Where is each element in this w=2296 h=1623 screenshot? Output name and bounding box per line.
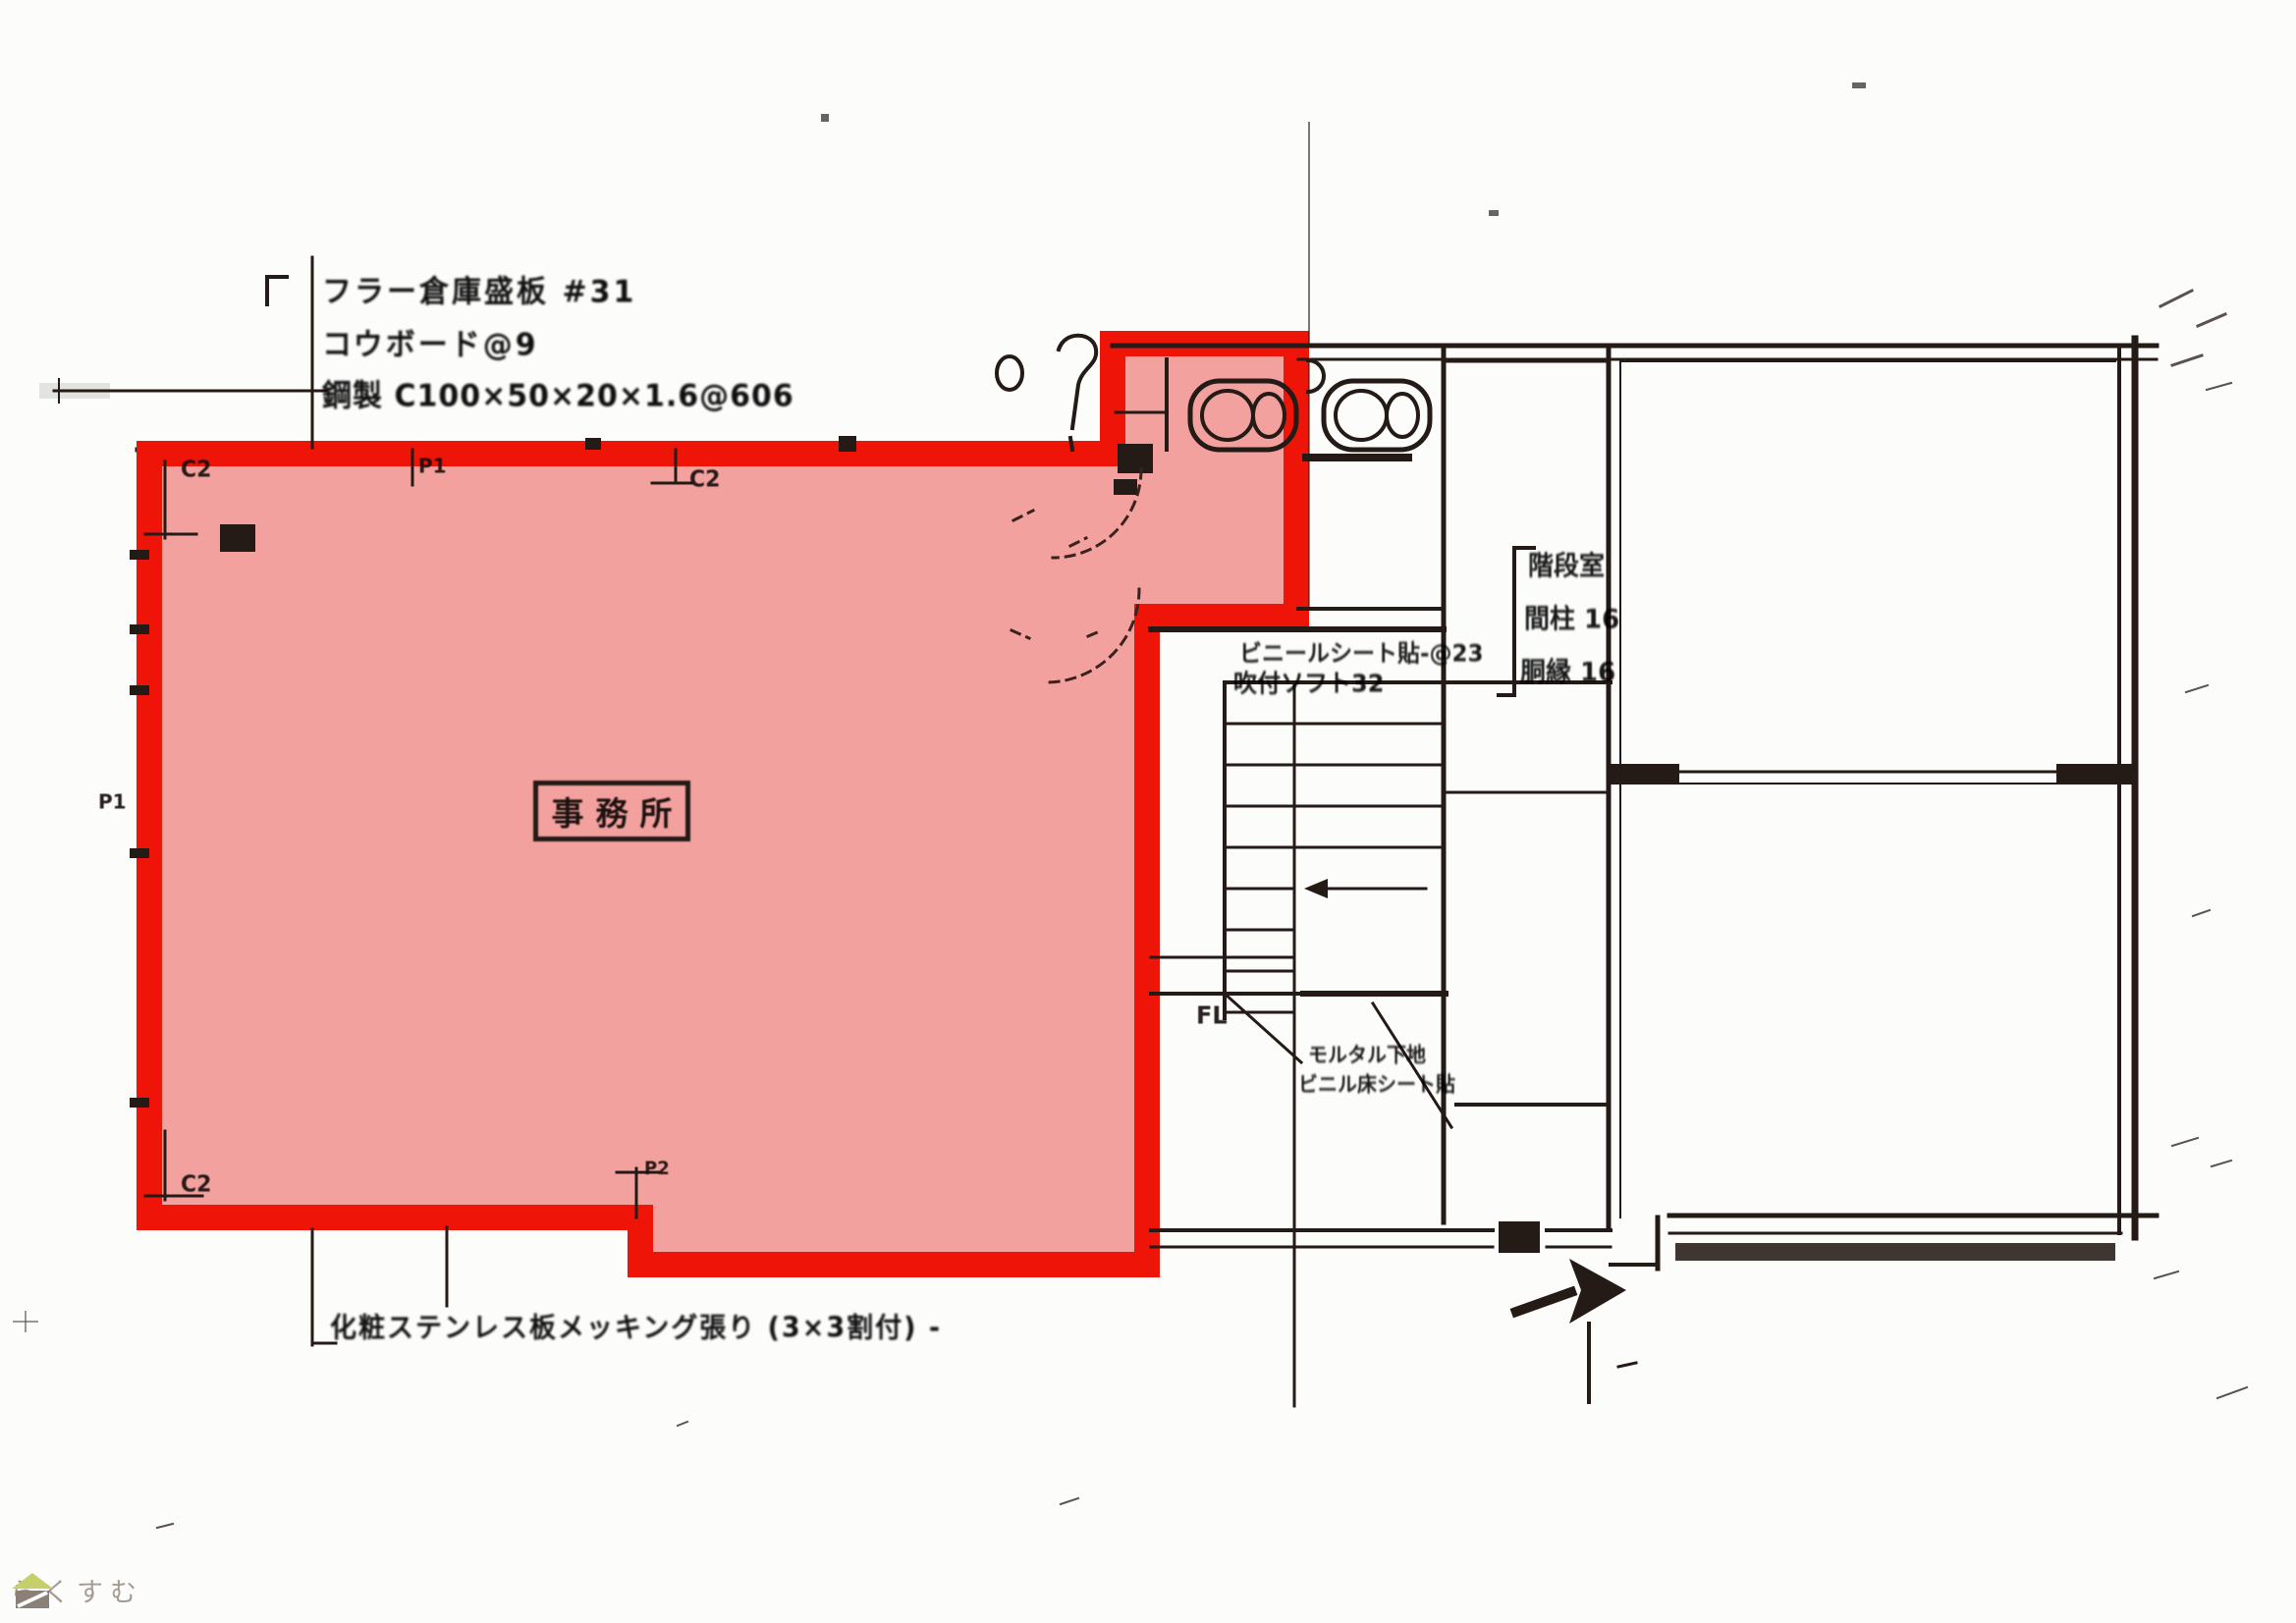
- floor-level-label: FL: [1196, 1001, 1228, 1029]
- note-top-left-line3: 鋼製 C100×50×20×1.6@606: [322, 370, 794, 415]
- note-right-spec-line3: 胴縁 16: [1520, 651, 1615, 688]
- house-logo-icon: [10, 1571, 55, 1610]
- handwritten-marks: [997, 336, 1096, 450]
- note-stair-top-line2: 吹付ソフト32: [1233, 663, 1384, 698]
- note-stair-mid-line1: モルタル下地: [1308, 1038, 1426, 1067]
- note-stair-mid-line2: ビニル床シート貼: [1298, 1067, 1455, 1097]
- entrance-arrow-icon: [1569, 1259, 1626, 1324]
- note-top-left-line1: フラー倉庫盛板 #31: [322, 266, 636, 311]
- column-mark-p2-bottom: P2: [644, 1159, 670, 1180]
- floor-plan-drawing: [0, 0, 2296, 1623]
- column-mark-p1-left: P1: [98, 789, 127, 814]
- note-top-left-line2: コウボード@9: [322, 319, 539, 364]
- right-rooms: [1609, 339, 2157, 1261]
- column-mark-c2-top-left: C2: [181, 458, 211, 483]
- column-mark-c2-bottom-left: C2: [181, 1172, 211, 1198]
- bottom-corridor: [1151, 1217, 1658, 1402]
- floorplan-page: フラー倉庫盛板 #31 コウボード@9 鋼製 C100×50×20×1.6@60…: [0, 0, 2296, 1623]
- room-label: 事務所: [540, 787, 684, 835]
- watermark: らくすむ: [10, 1571, 143, 1609]
- note-right-spec-line2: 間柱 16: [1524, 598, 1619, 635]
- note-right-spec-line1: 階段室: [1528, 545, 1605, 582]
- room-label-box: 事務所: [533, 781, 690, 841]
- note-bottom: 化粧ステンレス板メッキング張り (3×3割付) -: [330, 1305, 942, 1345]
- column-mark-c2-top-mid: C2: [689, 467, 720, 493]
- column-mark-p1-top: P1: [418, 454, 447, 478]
